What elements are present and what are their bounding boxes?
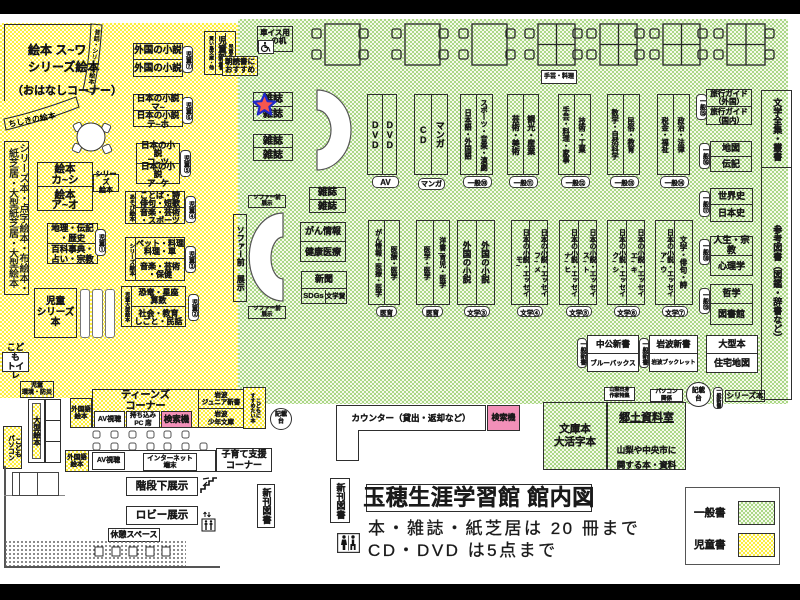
svg-text:ちしきの絵本: ちしきの絵本 [7,110,56,129]
